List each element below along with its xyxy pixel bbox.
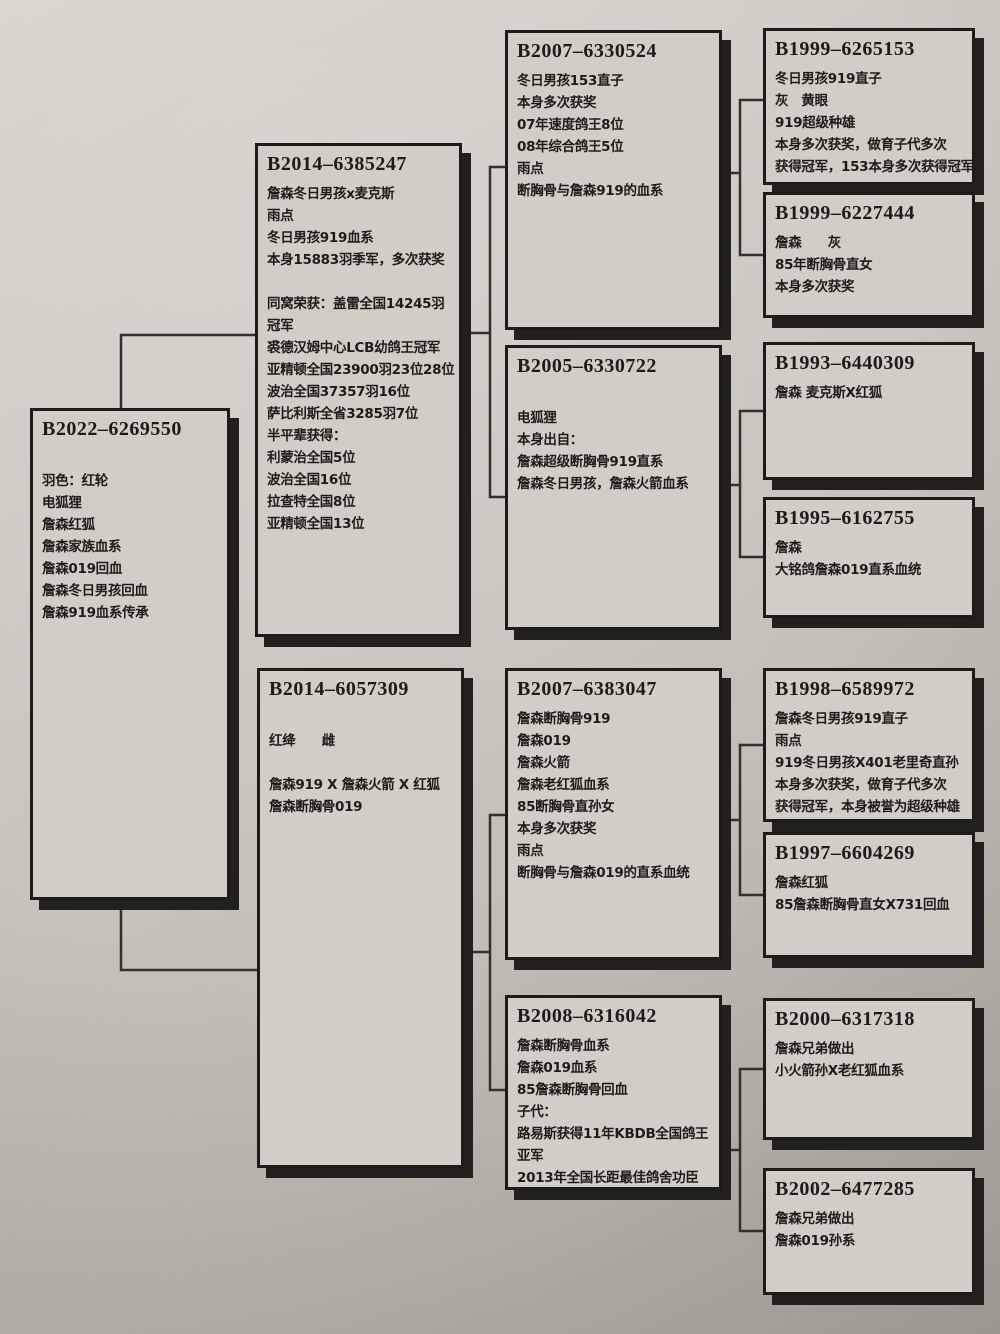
pedigree-text-line: 本身多次获奖 (775, 276, 966, 298)
pedigree-text-line: 詹森红狐 (42, 514, 221, 536)
pedigree-text-line: 詹森兄弟做出 (775, 1208, 966, 1230)
pedigree-text-line: 詹森 灰 (775, 232, 966, 254)
pedigree-sheet-photo: B2022–6269550 羽色：红轮电狐狸詹森红狐詹森家族血系詹森019回血詹… (0, 0, 1000, 1334)
pedigree-text-line: 詹森火箭 (517, 752, 713, 774)
pedigree-text-line: 本身出自： (517, 429, 713, 451)
pedigree-text-line: 冬日男孩153直子 (517, 70, 713, 92)
pedigree-text-line (42, 448, 221, 470)
pedigree-text-line: 詹森 (775, 537, 966, 559)
pedigree-box-sire-sire-dam: B1999–6227444 詹森 灰85年断胸骨直女本身多次获奖 (763, 192, 975, 318)
pedigree-text-line: 詹森019血系 (517, 1057, 713, 1079)
pedigree-text-line: 波治全国16位 (267, 469, 453, 491)
pedigree-box-text: 詹森冬日男孩x麦克斯雨点冬日男孩919血系本身15883羽季军，多次获奖同窝荣获… (267, 183, 453, 535)
ring-number: B1999–6265153 (775, 38, 966, 61)
connector-dam-sire-to-parents (722, 745, 763, 895)
pedigree-text-line: 詹森019 (517, 730, 713, 752)
pedigree-text-line: 919冬日男孩X401老里奇直孙 (775, 752, 966, 774)
pedigree-text-line: 詹森兄弟做出 (775, 1038, 966, 1060)
pedigree-box-dam-dam: B2008–6316042 詹森断胸骨血系詹森019血系85詹森断胸骨回血子代：… (505, 995, 722, 1190)
pedigree-text-line: 詹森 麦克斯X红狐 (775, 382, 966, 404)
pedigree-text-line: 詹森919 X 詹森火箭 X 红狐 (269, 774, 455, 796)
pedigree-text-line: 85詹森断胸骨回血 (517, 1079, 713, 1101)
pedigree-box-dam-dam-sire: B2000–6317318 詹森兄弟做出小火箭孙X老红狐血系 (763, 998, 975, 1140)
pedigree-text-line: 拉查特全国8位 (267, 491, 453, 513)
pedigree-text-line: 詹森019回血 (42, 558, 221, 580)
pedigree-box-text: 詹森断胸骨血系詹森019血系85詹森断胸骨回血子代：路易斯获得11年KBDB全国… (517, 1035, 713, 1189)
pedigree-text-line: 雨点 (267, 205, 453, 227)
ring-number: B2014–6057309 (269, 678, 455, 701)
pedigree-text-line: 08年综合鸽王5位 (517, 136, 713, 158)
pedigree-text-line: 詹森919血系传承 (42, 602, 221, 624)
pedigree-box-sire-dam-dam: B1995–6162755 詹森大铭鸽詹森019直系血统 (763, 497, 975, 618)
connector-sire-to-parents (462, 167, 505, 497)
pedigree-text-line: 断胸骨与詹森919的血系 (517, 180, 713, 202)
pedigree-box-text: 詹森红狐85詹森断胸骨直女X731回血 (775, 872, 966, 916)
pedigree-text-line: 919超级种雄 (775, 112, 966, 134)
pedigree-box-dam-dam-dam: B2002–6477285 詹森兄弟做出詹森019孙系 (763, 1168, 975, 1295)
pedigree-box-dam-sire-sire: B1998–6589972 詹森冬日男孩919直子雨点919冬日男孩X401老里… (763, 668, 975, 822)
connector-sire-sire-to-parents (722, 100, 763, 255)
pedigree-text-line: 2013年全国长距最佳鸽舍功臣 (517, 1167, 713, 1189)
pedigree-box-sire-sire: B2007–6330524 冬日男孩153直子本身多次获奖07年速度鸽王8位08… (505, 30, 722, 330)
pedigree-text-line: 詹森断胸骨919 (517, 708, 713, 730)
pedigree-box-text: 冬日男孩153直子本身多次获奖07年速度鸽王8位08年综合鸽王5位雨点断胸骨与詹… (517, 70, 713, 202)
pedigree-text-line: 萨比利斯全省3285羽7位 (267, 403, 453, 425)
connector-dam-dam-to-parents (722, 1069, 763, 1231)
pedigree-text-line (269, 708, 455, 730)
pedigree-text-line: 子代： (517, 1101, 713, 1123)
pedigree-text-line: 85年断胸骨直女 (775, 254, 966, 276)
pedigree-box-text: 电狐狸本身出自：詹森超级断胸骨919直系詹森冬日男孩，詹森火箭血系 (517, 385, 713, 495)
pedigree-box-text: 詹森 麦克斯X红狐 (775, 382, 966, 404)
ring-number: B2007–6383047 (517, 678, 713, 701)
pedigree-box-text: 詹森大铭鸽詹森019直系血统 (775, 537, 966, 581)
pedigree-text-line: 冬日男孩919血系 (267, 227, 453, 249)
pedigree-text-line: 85断胸骨直孙女 (517, 796, 713, 818)
pedigree-text-line: 詹森冬日男孩，詹森火箭血系 (517, 473, 713, 495)
pedigree-text-line (267, 271, 453, 293)
pedigree-text-line: 路易斯获得11年KBDB全国鸽王 (517, 1123, 713, 1145)
pedigree-box-sire: B2014–6385247 詹森冬日男孩x麦克斯雨点冬日男孩919血系本身158… (255, 143, 462, 637)
pedigree-text-line: 詹森019孙系 (775, 1230, 966, 1252)
pedigree-box-text: 詹森冬日男孩919直子雨点919冬日男孩X401老里奇直孙本身多次获奖，做育子代… (775, 708, 966, 818)
ring-number: B2005–6330722 (517, 355, 713, 378)
ring-number: B1993–6440309 (775, 352, 966, 375)
pedigree-text-line: 詹森断胸骨血系 (517, 1035, 713, 1057)
pedigree-text-line: 07年速度鸽王8位 (517, 114, 713, 136)
connector-sire-dam-to-parents (722, 411, 763, 557)
pedigree-text-line: 本身多次获奖，做育子代多次 (775, 774, 966, 796)
pedigree-text-line: 羽色：红轮 (42, 470, 221, 492)
pedigree-box-dam: B2014–6057309 红绛 雌詹森919 X 詹森火箭 X 红狐詹森断胸骨… (257, 668, 464, 1168)
pedigree-text-line (517, 385, 713, 407)
pedigree-text-line: 半平辈获得： (267, 425, 453, 447)
pedigree-text-line: 大铭鸽詹森019直系血统 (775, 559, 966, 581)
pedigree-box-sire-dam: B2005–6330722 电狐狸本身出自：詹森超级断胸骨919直系詹森冬日男孩… (505, 345, 722, 630)
pedigree-text-line: 红绛 雌 (269, 730, 455, 752)
pedigree-text-line: 亚精顿全国13位 (267, 513, 453, 535)
pedigree-text-line: 本身多次获奖 (517, 92, 713, 114)
pedigree-text-line: 85詹森断胸骨直女X731回血 (775, 894, 966, 916)
pedigree-text-line: 裘德汉姆中心LCB幼鸽王冠军 (267, 337, 453, 359)
pedigree-text-line: 电狐狸 (517, 407, 713, 429)
pedigree-box-sire-sire-sire: B1999–6265153 冬日男孩919直子灰 黄眼919超级种雄本身多次获奖… (763, 28, 975, 185)
pedigree-text-line: 雨点 (517, 840, 713, 862)
pedigree-box-sire-dam-sire: B1993–6440309 詹森 麦克斯X红狐 (763, 342, 975, 480)
pedigree-text-line (269, 752, 455, 774)
pedigree-text-line: 詹森冬日男孩x麦克斯 (267, 183, 453, 205)
pedigree-text-line: 詹森家族血系 (42, 536, 221, 558)
ring-number: B1995–6162755 (775, 507, 966, 530)
ring-number: B2014–6385247 (267, 153, 453, 176)
pedigree-text-line: 詹森超级断胸骨919直系 (517, 451, 713, 473)
pedigree-text-line: 小火箭孙X老红狐血系 (775, 1060, 966, 1082)
pedigree-text-line: 波治全国37357羽16位 (267, 381, 453, 403)
pedigree-text-line: 利蒙治全国5位 (267, 447, 453, 469)
pedigree-box-subject: B2022–6269550 羽色：红轮电狐狸詹森红狐詹森家族血系詹森019回血詹… (30, 408, 230, 900)
pedigree-text-line: 亚军 (517, 1145, 713, 1167)
pedigree-text-line: 灰 黄眼 (775, 90, 966, 112)
pedigree-box-text: 红绛 雌詹森919 X 詹森火箭 X 红狐詹森断胸骨019 (269, 708, 455, 818)
pedigree-text-line: 获得冠军，本身被誉为超级种雄 (775, 796, 966, 818)
ring-number: B1998–6589972 (775, 678, 966, 701)
pedigree-text-line: 断胸骨与詹森019的直系血统 (517, 862, 713, 884)
pedigree-box-dam-sire-dam: B1997–6604269 詹森红狐85詹森断胸骨直女X731回血 (763, 832, 975, 958)
pedigree-box-text: 詹森 灰85年断胸骨直女本身多次获奖 (775, 232, 966, 298)
pedigree-box-text: 冬日男孩919直子灰 黄眼919超级种雄本身多次获奖，做育子代多次获得冠军，15… (775, 68, 966, 178)
pedigree-text-line: 詹森老红狐血系 (517, 774, 713, 796)
pedigree-box-dam-sire: B2007–6383047 詹森断胸骨919詹森019詹森火箭詹森老红狐血系85… (505, 668, 722, 960)
pedigree-text-line: 詹森冬日男孩919直子 (775, 708, 966, 730)
pedigree-box-text: 詹森兄弟做出詹森019孙系 (775, 1208, 966, 1252)
pedigree-text-line: 本身15883羽季军，多次获奖 (267, 249, 453, 271)
pedigree-box-text: 詹森兄弟做出小火箭孙X老红狐血系 (775, 1038, 966, 1082)
pedigree-text-line: 雨点 (517, 158, 713, 180)
pedigree-text-line: 亚精顿全国23900羽23位28位 (267, 359, 453, 381)
pedigree-text-line: 电狐狸 (42, 492, 221, 514)
ring-number: B2008–6316042 (517, 1005, 713, 1028)
ring-number: B1999–6227444 (775, 202, 966, 225)
ring-number: B2007–6330524 (517, 40, 713, 63)
pedigree-text-line: 詹森断胸骨019 (269, 796, 455, 818)
pedigree-text-line: 雨点 (775, 730, 966, 752)
pedigree-text-line: 詹森冬日男孩回血 (42, 580, 221, 602)
connector-dam-to-parents (462, 815, 505, 1090)
pedigree-text-line: 同窝荣获：盖雷全国14245羽 (267, 293, 453, 315)
pedigree-text-line: 冬日男孩919直子 (775, 68, 966, 90)
ring-number: B2000–6317318 (775, 1008, 966, 1031)
pedigree-text-line: 本身多次获奖，做育子代多次 (775, 134, 966, 156)
ring-number: B1997–6604269 (775, 842, 966, 865)
pedigree-text-line: 获得冠军，153本身多次获得冠军 (775, 156, 966, 178)
pedigree-box-text: 詹森断胸骨919詹森019詹森火箭詹森老红狐血系85断胸骨直孙女本身多次获奖雨点… (517, 708, 713, 884)
pedigree-text-line: 本身多次获奖 (517, 818, 713, 840)
pedigree-box-text: 羽色：红轮电狐狸詹森红狐詹森家族血系詹森019回血詹森冬日男孩回血詹森919血系… (42, 448, 221, 624)
pedigree-text-line: 冠军 (267, 315, 453, 337)
ring-number: B2022–6269550 (42, 418, 221, 441)
pedigree-text-line: 詹森红狐 (775, 872, 966, 894)
ring-number: B2002–6477285 (775, 1178, 966, 1201)
